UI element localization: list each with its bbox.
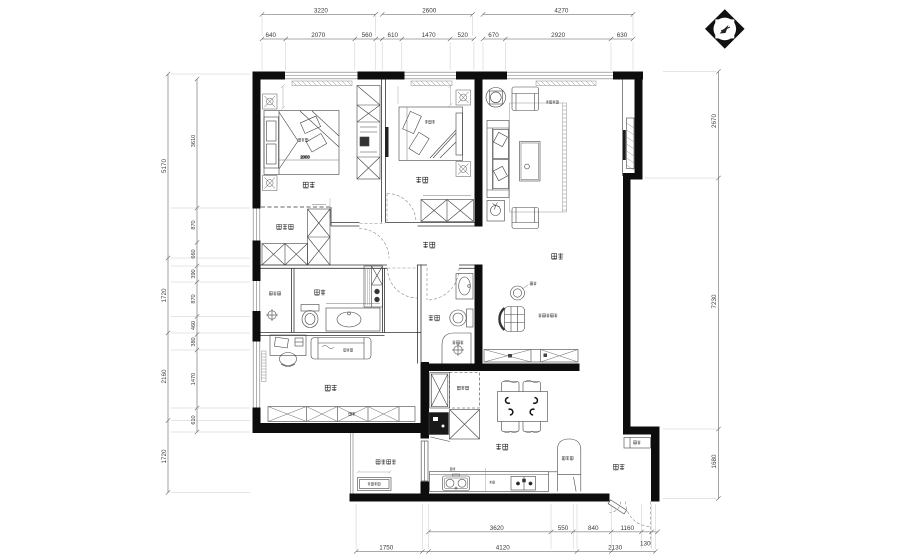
- svg-text:630: 630: [617, 32, 628, 39]
- svg-text:380: 380: [191, 337, 197, 346]
- svg-text:130: 130: [640, 541, 651, 548]
- svg-text:5170: 5170: [161, 159, 168, 174]
- svg-text:1470: 1470: [191, 373, 197, 385]
- svg-text:640: 640: [266, 32, 277, 39]
- svg-text:1470: 1470: [422, 32, 437, 39]
- svg-text:7230: 7230: [711, 294, 718, 309]
- svg-text:2920: 2920: [551, 32, 566, 39]
- svg-text:4270: 4270: [554, 8, 569, 15]
- svg-text:660: 660: [191, 249, 197, 258]
- svg-text:840: 840: [588, 525, 599, 532]
- svg-text:1720: 1720: [161, 449, 168, 464]
- svg-text:2000: 2000: [300, 155, 310, 160]
- svg-text:2600: 2600: [422, 8, 437, 15]
- svg-text:2670: 2670: [711, 114, 718, 129]
- svg-text:1680: 1680: [711, 454, 718, 469]
- svg-text:560: 560: [362, 32, 373, 39]
- svg-text:870: 870: [191, 294, 197, 303]
- svg-text:550: 550: [558, 525, 569, 532]
- svg-text:520: 520: [458, 32, 469, 39]
- svg-text:1160: 1160: [621, 525, 635, 532]
- svg-text:3220: 3220: [314, 8, 329, 15]
- svg-text:1750: 1750: [379, 545, 394, 552]
- svg-text:390: 390: [191, 269, 197, 278]
- svg-text:460: 460: [191, 321, 197, 330]
- svg-text:3620: 3620: [490, 525, 505, 532]
- svg-text:2160: 2160: [161, 369, 168, 384]
- svg-text:4120: 4120: [496, 545, 511, 552]
- svg-text:670: 670: [488, 32, 499, 39]
- svg-text:1720: 1720: [161, 288, 168, 303]
- svg-text:610: 610: [387, 32, 398, 39]
- svg-text:2070: 2070: [311, 32, 326, 39]
- svg-text:870: 870: [191, 220, 197, 229]
- svg-text:2130: 2130: [608, 545, 623, 552]
- svg-text:3610: 3610: [191, 135, 197, 147]
- svg-text:610: 610: [191, 415, 197, 424]
